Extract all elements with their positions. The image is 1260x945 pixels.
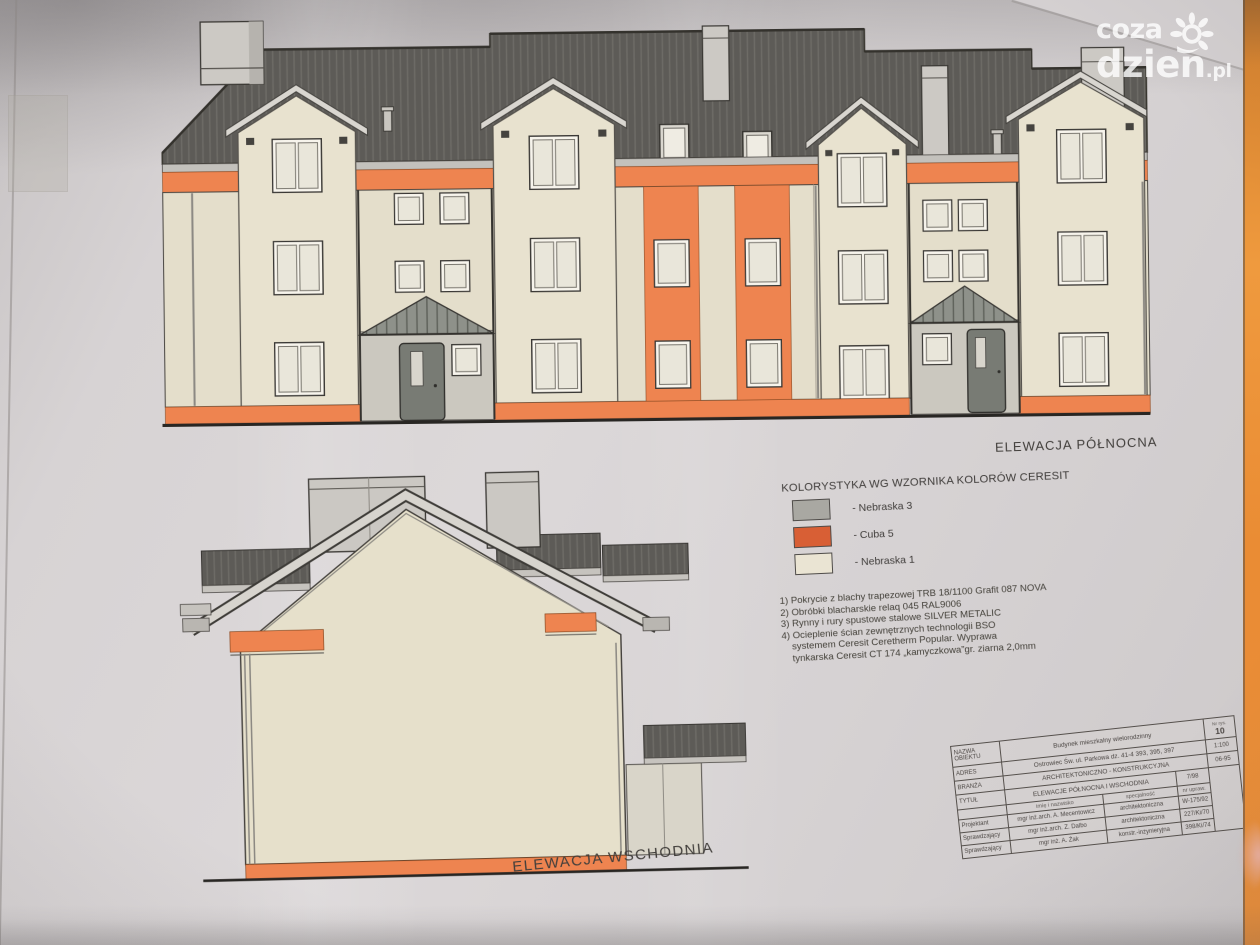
gable-dormer	[225, 84, 371, 407]
watermark-text-dzien: dzien	[1096, 43, 1206, 86]
north-elevation-drawing	[155, 0, 1152, 438]
watermark-text-coza: coza	[1096, 16, 1163, 43]
gable-dormer	[480, 77, 630, 404]
east-elevation-drawing	[173, 459, 753, 893]
gable-dormer	[805, 96, 921, 399]
color-legend: KOLORYSTYKA WG WZORNIKA KOLORÓW CERESIT …	[781, 471, 1035, 575]
elevation-north-label: ELEWACJA PÓŁNOCNA	[995, 434, 1158, 455]
material-notes: 1) Pokrycie z blachy trapezowej TRB 18/1…	[779, 582, 1049, 665]
tape-mark	[8, 95, 68, 192]
drawing-no: 10	[1215, 726, 1225, 735]
watermark-text-pl: .pl	[1206, 60, 1232, 82]
legend-item: - Nebraska 1	[784, 543, 1035, 575]
color-swatch-nebraska1	[794, 552, 833, 575]
legend-item: - Nebraska 3	[782, 489, 1033, 521]
watermark-logo: coza dzien.pl	[1096, 16, 1231, 83]
color-swatch-nebraska3	[792, 499, 831, 522]
color-swatch-cuba5	[793, 525, 832, 548]
table-surface-edge	[1243, 0, 1260, 945]
photographed-blueprint-sheet: ELEWACJA PÓŁNOCNA KOLORYSTYKA WG WZORNIK…	[0, 0, 1260, 945]
side-annex	[625, 723, 748, 855]
finger-blur	[1238, 818, 1260, 892]
title-block: NAZWA OBIEKTU Budynek mieszkalny wieloro…	[950, 715, 1247, 859]
legend-item: - Cuba 5	[783, 516, 1034, 548]
bottom-shadow	[0, 919, 1260, 945]
gable-dormer	[1006, 70, 1151, 397]
